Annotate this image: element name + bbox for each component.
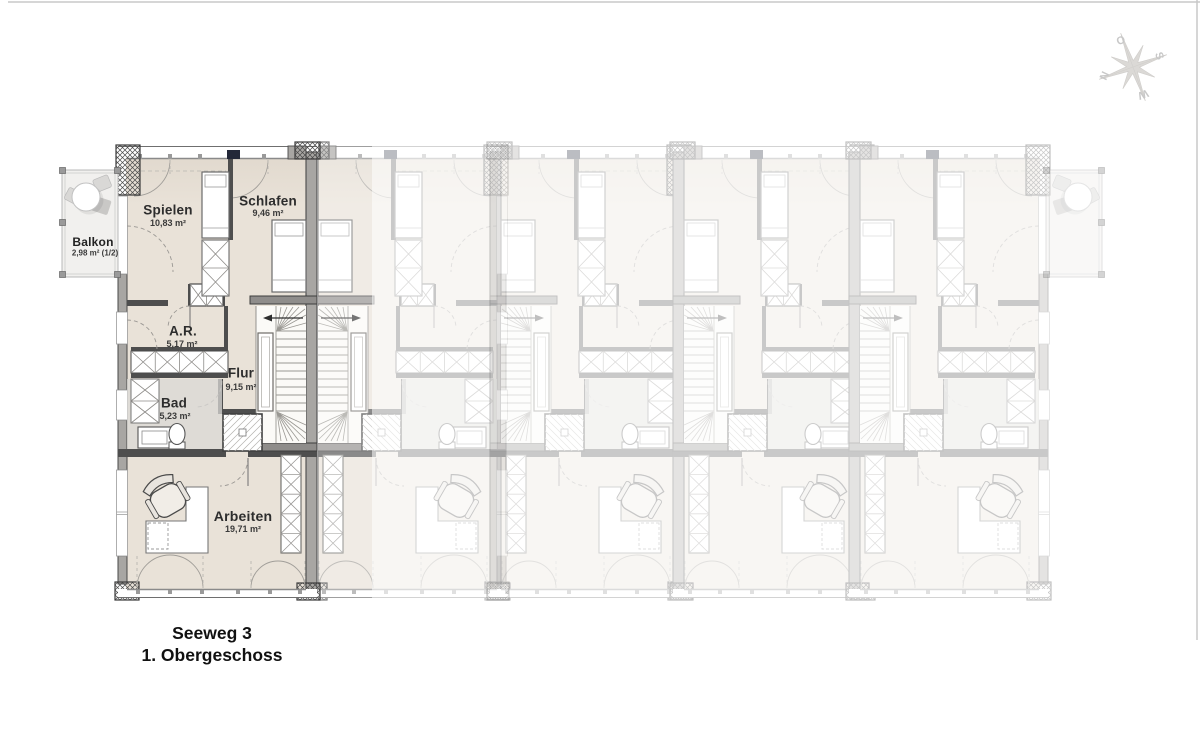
compass-n: N: [1098, 70, 1112, 82]
room-area-bad: 5,23 m²: [159, 411, 190, 421]
room-label-balkon: Balkon: [72, 235, 113, 249]
room-label-ar: A.R.: [169, 324, 197, 339]
room-label-spielen: Spielen: [143, 203, 192, 218]
title-street: Seeweg 3: [172, 623, 252, 644]
room-label-flur: Flur: [228, 366, 254, 381]
compass-s: S: [1152, 50, 1166, 61]
room-area-arbeiten: 19,71 m²: [225, 524, 261, 534]
room-area-balkon: 2,98 m² (1/2): [72, 249, 118, 258]
floor-plan-page: N O S W Balkon 2,98 m² (1/2) Spielen 10,…: [0, 0, 1200, 755]
title-floor: 1. Obergeschoss: [141, 645, 282, 666]
room-label-bad: Bad: [161, 396, 187, 411]
room-label-arbeiten: Arbeiten: [214, 508, 272, 524]
ghost-units: [304, 142, 1051, 600]
room-label-schlafen: Schlafen: [239, 194, 297, 209]
room-area-schlafen: 9,46 m²: [252, 208, 283, 218]
balcony-right-ghost: [1044, 168, 1105, 278]
balcony-left: [60, 168, 121, 278]
compass-w: W: [1135, 87, 1149, 102]
room-area-flur: 9,15 m²: [225, 382, 256, 392]
compass-rose: N O S W: [1087, 21, 1179, 113]
room-area-spielen: 10,83 m²: [150, 218, 186, 228]
room-area-ar: 5,17 m²: [166, 339, 197, 349]
